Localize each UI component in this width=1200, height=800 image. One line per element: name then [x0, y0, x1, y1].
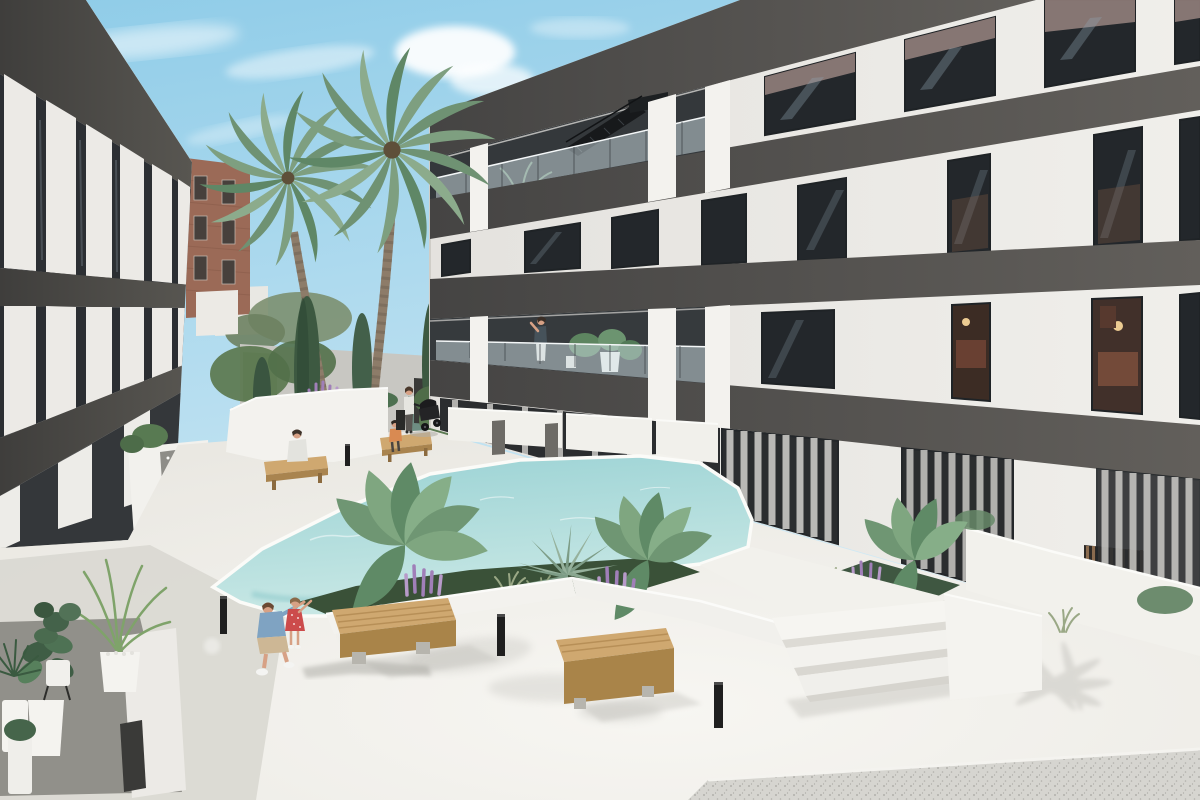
waste-bin [396, 410, 405, 430]
man-shorts [257, 636, 289, 654]
concrete-foot [642, 686, 654, 697]
lens-flare [204, 638, 220, 654]
interior-furniture [956, 340, 986, 368]
rendered-photo [0, 0, 1200, 800]
concrete-foot [574, 698, 586, 709]
white-pot [46, 660, 70, 686]
tall-white-pot [8, 736, 32, 794]
terrace-shrub [120, 435, 144, 453]
concrete-foot [352, 652, 366, 664]
terrace-hatch [120, 720, 146, 792]
white-pot [100, 652, 140, 692]
interior-lamp [962, 318, 970, 326]
shrub [1137, 586, 1193, 614]
concrete-foot [416, 642, 430, 654]
pot-plant [4, 719, 36, 741]
utility-boxes [196, 290, 238, 336]
